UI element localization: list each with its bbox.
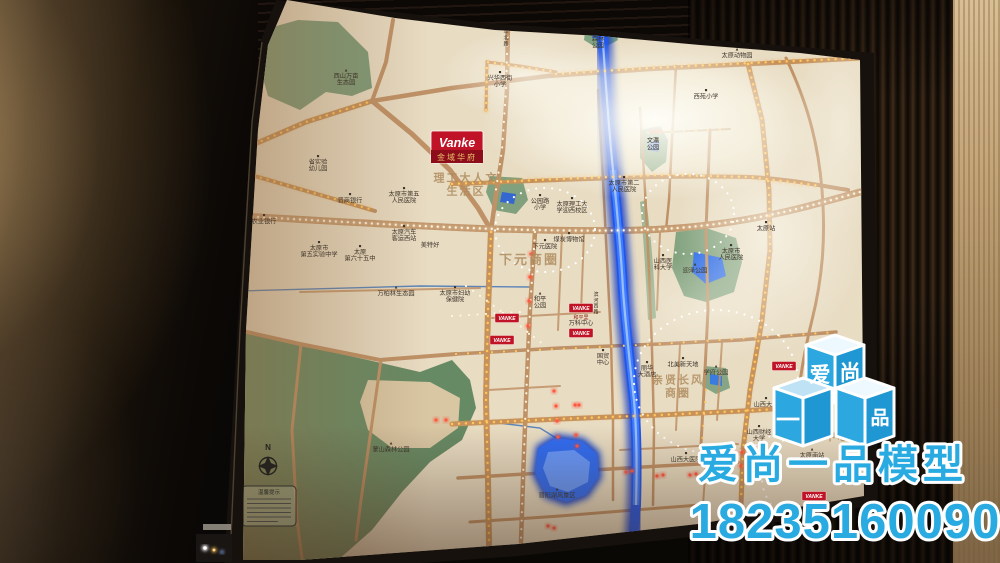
photo-of-map-board: 理工大人文生活区下元商圈亲贤长风商圈太原新中心 ▲西山万亩生态园■兴华西街小学■… (0, 0, 1000, 563)
cube-char-ai: 爱 (810, 364, 831, 387)
watermark-brand-text: 爱尚一品模型 (698, 443, 968, 487)
watermark-phone-text: 18235160090 (690, 495, 1000, 549)
cube-char-pin: 品 (870, 407, 889, 429)
cube-char-yi: 一 (776, 407, 800, 434)
watermark-logo: 爱 尚 一 品 爱尚一品模型 18235160090 (0, 0, 1000, 563)
cube-char-shang: 尚 (840, 362, 861, 385)
